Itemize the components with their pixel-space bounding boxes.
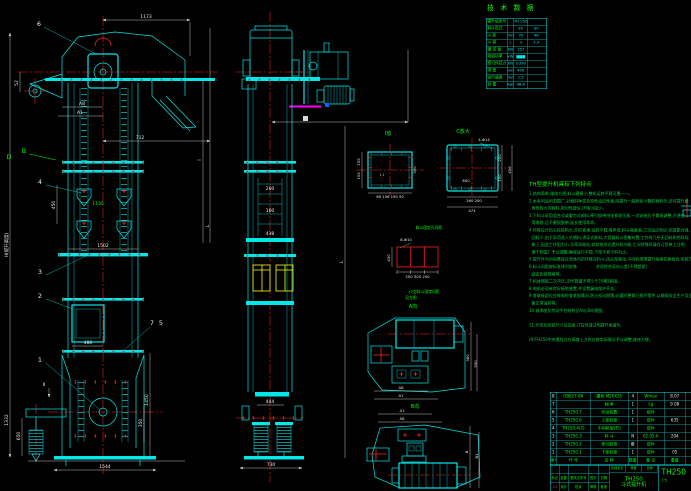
tech-row-value-1: 400 [514, 68, 528, 75]
tech-table-row: 斗 距 mm 35 48 [487, 33, 547, 40]
bom-code: TH250.3 [557, 433, 591, 441]
note-line: 便于制造厂予以调整,确保运行平稳,下部不易卡料为止。 [529, 249, 691, 256]
sign-label: 审核 [589, 483, 599, 491]
tech-row-value-2 [528, 19, 545, 26]
bom-row: 5 TH250.6 上部机架 1 部件 635 [551, 417, 691, 425]
dim-155a: 155 [356, 158, 361, 166]
note-line: 7.机体钢板二次冲压,正H(数量不得少于16套)紧固。 [529, 278, 691, 285]
stage-label: 阶段标记 [610, 466, 626, 473]
dim-390: 390 [412, 166, 417, 174]
bom-name: 下部机架 [591, 449, 629, 457]
dim-350: 350 [138, 419, 144, 428]
tech-row-value-2: 48 [528, 33, 545, 40]
bom-row: 4 TH250.4(3) 中间机架(节) 部件 [551, 425, 691, 433]
bom-header-extra [686, 457, 691, 465]
bom-qty: 1 [629, 417, 638, 425]
tech-row-value-2 [528, 82, 545, 89]
dim-650: 650 [16, 432, 22, 441]
tech-row-label: 运行速度 [487, 75, 508, 82]
dim-A8-viewB: A8 [399, 416, 405, 421]
drawing-number: TH250 [662, 466, 691, 479]
section-I: I放 I-I 98 156 195 92 155 155 390 [356, 130, 424, 199]
dim-H: H(提升高度) [3, 232, 10, 257]
bom-extra [686, 425, 691, 433]
tech-table-row: 带 宽 mm 400 [487, 68, 547, 75]
title-block: 标记 处数 更改文件号 签字 日期 1:5 设计 校对 审核 批准 阶段标记 质 [550, 465, 691, 491]
product-name: 斗式提升机 [621, 482, 646, 488]
drawing-scale-2: 1:5 [662, 479, 691, 483]
bom-code: TH250.6 [557, 417, 591, 425]
tech-row-label: 斗 距 [487, 33, 508, 40]
dim-L-side: L [339, 260, 345, 263]
bom-remark: 部件 [638, 425, 665, 433]
bom-row: 3 TH250.3 料 斗 N 02.05-A 204 [551, 433, 691, 441]
bom-extra [686, 433, 691, 441]
rev-label: 日期 [599, 474, 610, 482]
bom-remark: 部件 [638, 449, 665, 457]
bom-remark: 02.05-A [638, 433, 665, 441]
tech-table-row: 自 重 kg/m 48.8 [487, 82, 547, 89]
view-B: B向 A1 A8 B B1 [367, 403, 480, 488]
bom-name: 轴 承 [591, 401, 629, 409]
bom-row: 6 TH250.7 传动装置 1 组件 [551, 409, 691, 417]
bom-qty: 1 [629, 449, 638, 457]
bom-remark: Lg [638, 401, 665, 409]
sign-label: 设计 [560, 483, 569, 491]
tech-row-label: 料斗形式 [487, 26, 508, 33]
tech-row-value-2 [528, 68, 545, 75]
note-line: 9.各联接部位应每周检查紧固情况,防止松动脱落,必要时更换已损坏零件,以确保安全… [529, 293, 691, 300]
bom-code [557, 401, 591, 409]
detail-title: 料斗固定孔间距 [416, 225, 443, 230]
bom-row: 2 TH250.2 牵引胶带 套 部件 [551, 441, 691, 449]
bolt-note: 4-Φ14 [478, 137, 490, 142]
bom-header-code: 代 号 [557, 457, 591, 465]
bom-code: TH250.1 [557, 449, 591, 457]
note-line: 4.特殊设计的头轮结构大,外形紧凑,运转平稳,噪声低,料斗强度高,工况适应性好,… [529, 227, 691, 234]
note-line: 3.下料斗采用混合式或重力式卸料,牵引胶带由张紧轮压紧,一次安装后不需再调整,方… [529, 212, 691, 219]
dim-B1: B1 [474, 453, 479, 459]
bom-weight: 9.08 [665, 401, 686, 409]
tech-table-row: 输 送 量 kN 157 [487, 47, 547, 54]
bom-name: 传动装置 [591, 409, 629, 417]
note-line [529, 329, 691, 336]
rev-label: 处数 [560, 474, 569, 482]
hole-note: 8-Φ10 [400, 237, 412, 242]
bom-code: TH250.4(3) [557, 425, 591, 433]
bom-code: TH250.2 [557, 441, 591, 449]
bom-remark: 部件 [638, 417, 665, 425]
dim-1173: 1173 [140, 14, 152, 20]
drawing-number-block: TH250 1:5 [659, 466, 691, 491]
revision-block: 标记 处数 更改文件号 签字 日期 1:5 设计 校对 审核 批准 [551, 466, 610, 491]
bom-extra [686, 393, 691, 401]
bom-name: 中间机架(节) [591, 425, 629, 433]
bom-and-title-block: 8 GB827-86 螺栓 M20X35 4 Wmax 8.07 7 轴 承 1… [550, 392, 691, 491]
dim-l: l [197, 159, 203, 160]
tech-row-value-1: 3 [514, 40, 528, 47]
dim-1502: 1502 [97, 243, 109, 249]
bom-weight [665, 441, 686, 449]
callout-2: 2 [38, 292, 42, 300]
view-A: A向 A8 A1 380 550 [368, 303, 478, 399]
view-A-label: A向 [409, 303, 417, 310]
tech-table-row: 牵引件拉力 kN ≥330 [487, 61, 547, 68]
section-mark-II: Ⅱ [43, 382, 45, 388]
callout-6: 6 [37, 20, 41, 28]
dim-474: 474 [468, 208, 476, 213]
bom-remark: 部件 [638, 441, 665, 449]
bom-header: 序号 代 号 名 称 数量 备 注 重量 [550, 457, 691, 466]
dim-A1-viewB: A1 [399, 408, 405, 413]
sign-label: 校对 [569, 483, 589, 491]
bom-header-name: 名 称 [591, 457, 629, 465]
section-C-label: C放大 [456, 128, 470, 135]
dim-155b: 155 [356, 172, 361, 180]
tech-table-row: 电机功率 kW ▆▆▆ [487, 54, 547, 61]
bom-name: 上部机架 [591, 417, 629, 425]
tech-table-row: 斗 容 L 3 1.3 [487, 40, 547, 47]
callout-1: 1 [38, 356, 42, 364]
rev-label: 更改文件号 [569, 474, 589, 482]
bom-remark: 组件 [638, 409, 665, 417]
bom-extra [686, 449, 691, 457]
bom-weight: 635 [665, 417, 686, 425]
callout-7: 7 [150, 319, 154, 327]
dim-712: 712 [136, 135, 145, 141]
tech-table-row: 运行速度 m/s 1.5 [487, 75, 547, 82]
tech-row-value-1: 35 [514, 33, 528, 40]
bom-name: 螺栓 M20X35 [591, 393, 629, 401]
bom-weight [665, 425, 686, 433]
side-view-dimensions: L 444 730 [240, 50, 408, 468]
note-line: 11.外形及安装尺寸见总图,订货时请注明提升高度H。 [529, 322, 691, 329]
tech-row-value-1: 1.5 [514, 75, 528, 82]
front-view: 1173 712 L l A8 A1 52 H(提升高度) 1332 650 4… [3, 14, 218, 474]
note-line: 固定安装规格等。 [529, 271, 691, 278]
tech-row-value-2: 1.3 [528, 40, 545, 47]
bom-weight: 05 [665, 449, 686, 457]
tech-row-value-1: ▆▆▆ [514, 54, 528, 61]
tech-row-value-1: ≥330 [514, 61, 528, 68]
detail-note-1: Y2型料斗固定间距 [408, 289, 440, 294]
dim-150: 150 [497, 174, 502, 182]
bom-name: 牵引胶带 [591, 441, 629, 449]
spacing-dims: 200 300 200 [405, 274, 430, 279]
bom-code: GB827-86 [557, 393, 591, 401]
tech-table-body: 提升机型号 TH 250 料斗形式 Zh Sh 斗 距 mm 35 48 [486, 18, 547, 89]
note-line [529, 315, 691, 322]
tech-table-title: 技 术 数 据 [487, 3, 536, 13]
dim-260: 260 [266, 186, 275, 192]
dim-B: B [464, 450, 469, 453]
tech-table-row: 提升机型号 TH 250 [487, 19, 547, 26]
bom-header-weight: 重量 [665, 457, 686, 465]
section-C: C放大 4-Φ14 600 260 200 474 200 150 456 [440, 128, 512, 213]
rev-label: 签字 [589, 474, 599, 482]
tech-row-value-2 [528, 54, 545, 61]
dim-A8-viewA: A8 [398, 385, 404, 390]
note-line: 用维修,且不磨损胶带,延长使用寿命。 [529, 220, 691, 227]
tech-row-value-1: TH 250 [514, 19, 528, 26]
note-line: 2.本系列适用范围广,对物料种类及特性适应性强,除提升一般粉状小颗粒物料外,还可… [529, 198, 691, 205]
bom-extra [686, 441, 691, 449]
callout-5: 5 [159, 319, 163, 327]
dim-480: 480 [84, 340, 93, 346]
bom-row: 1 TH250.1 下部机架 1 部件 05 [551, 449, 691, 457]
section-I-label: I放 [385, 130, 391, 137]
section-I-inner-label: I-I [380, 172, 384, 177]
bom-qty [629, 425, 638, 433]
notes-lines: 1.结构简单,维修方便,料斗磨损小,整机运转平稳可靠一一。2.本系列适用范围广,… [529, 191, 691, 344]
bom-qty: N [629, 433, 638, 441]
tech-row-label: 电机功率 [487, 54, 508, 61]
view-B-label: B向 [411, 403, 419, 410]
note-line: 1.结构简单,维修方便,料斗磨损小,整机运转平稳可靠一一。 [529, 191, 691, 198]
dim-1332: 1332 [4, 414, 10, 426]
dim-160: 160 [266, 208, 275, 214]
dim-430: 430 [386, 254, 391, 262]
tech-row-value-2 [528, 47, 545, 54]
rev-label: 标记 [551, 474, 560, 482]
tech-row-label: 牵引件拉力 [487, 61, 508, 68]
dim-600: 600 [462, 178, 470, 183]
tech-row-value-1: Zh [514, 26, 528, 33]
bom-extra [686, 409, 691, 417]
dim-A1: A1 [77, 110, 83, 116]
dim-1130: 1130 [92, 201, 104, 207]
dim-380: 380 [465, 354, 470, 362]
note-line: 8.电机必须有良好接地装置,并设置漏电保护开关。 [529, 285, 691, 292]
note-line: 10.轴承座及传动平台结构见A向,B向视图。 [529, 307, 691, 314]
bom-code: TH250.7 [557, 409, 591, 417]
dim-550: 550 [473, 360, 478, 368]
tech-row-label: 自 重 [487, 82, 508, 89]
note-line: 琢性较大的物料,密封性能好,环境污染少。 [529, 205, 691, 212]
dim-1450: 1450 [144, 394, 150, 406]
tech-table-row: 料斗形式 Zh Sh [487, 26, 547, 33]
view-label-D: D [6, 153, 11, 161]
bom-weight: 204 [665, 433, 686, 441]
note-line: (9)TH250中央悬挂点在高度上方时应按实际情况予以调整,维修方便。 [529, 336, 691, 343]
detail-note-2: 见左图 [405, 295, 417, 300]
bom-row: 8 GB827-86 螺栓 M20X35 4 Wmax 8.07 [551, 393, 691, 401]
bom-row: 7 轴 承 1 Lg 9.08 [551, 401, 691, 409]
blue-marker [325, 103, 329, 107]
bom-qty: 1 [629, 401, 638, 409]
bom-weight: 8.07 [665, 393, 686, 401]
tech-row-label: 提升机型号 [487, 19, 508, 26]
dim-A8: A8 [79, 101, 85, 107]
note-line: 6.料斗间距按标准排列安装 并须符合双向公差(不得超差) [529, 263, 691, 270]
side-bolt-marks [242, 80, 318, 418]
bom-header-remark: 备 注 [638, 457, 665, 465]
dim-1544: 1544 [99, 464, 111, 470]
white-marker [303, 116, 308, 121]
callout-4: 4 [38, 178, 42, 186]
bom-extra [686, 417, 691, 425]
bom-table: 8 GB827-86 螺栓 M20X35 4 Wmax 8.07 7 轴 承 1… [550, 392, 691, 457]
tech-row-value-1: 157 [514, 47, 528, 54]
tech-row-label: 带 宽 [487, 68, 508, 75]
bom-name: 料 斗 [591, 433, 629, 441]
dim-52: 52 [14, 80, 20, 86]
tech-row-value-2: Sh [528, 26, 545, 33]
tech-data-table: 提升机型号 TH 250 料斗形式 Zh Sh 斗 距 mm 35 48 [486, 18, 548, 89]
callout-3: 3 [38, 268, 42, 276]
bom-header-qty: 数量 [629, 457, 638, 465]
notes-title: TH型提升机具有下列特点 [529, 180, 691, 188]
stage-label: 质量 [626, 466, 642, 473]
dim-260-200: 260 200 [466, 198, 482, 203]
dim-456: 456 [507, 166, 512, 174]
product-block: 阶段标记 质量 比例 TH250 斗式提升机 [610, 466, 659, 491]
side-view: 260 160 438 L 444 [236, 12, 408, 482]
dim-444: 444 [266, 399, 275, 405]
bom-extra [686, 401, 691, 409]
tech-row-label: 输 送 量 [487, 47, 508, 54]
drawing-scale: 1:5 [551, 483, 560, 491]
tech-row-label: 斗 容 [487, 40, 508, 47]
dim-730: 730 [267, 462, 276, 468]
note-line: 备正常运转等。 [529, 300, 691, 307]
note-line: 5.提升件为自由悬挂在壳体内的环链及料斗,由头部驱动,中间机架随提升高度任意组合… [529, 256, 691, 263]
stage-label: 比例 [642, 466, 658, 473]
bucket-spacing-detail: 料斗固定孔间距 8-Φ10 200 300 200 430 Y2型料斗固定间距 … [386, 225, 442, 300]
bom-weight [665, 409, 686, 417]
tech-row-value-2 [528, 61, 545, 68]
note-line: 回料少,由于采用流入式喂料,诱导式卸料,大容量料斗密集布置,工作时几乎无回料和挖… [529, 234, 691, 241]
tech-row-value-1: 48.8 [514, 82, 528, 89]
bom-qty: 4 [629, 393, 638, 401]
dim-200: 200 [497, 154, 502, 162]
dim-450: 450 [51, 201, 57, 210]
section-I-bottom-dims: 98 156 195 92 [376, 194, 404, 199]
dim-438: 438 [266, 231, 275, 237]
notes-block: TH型提升机具有下列特点 1.结构简单,维修方便,料斗磨损小,整机运转平稳可靠一… [529, 180, 691, 380]
tech-row-value-2 [528, 75, 545, 82]
bom-qty: 1 [629, 409, 638, 417]
cad-canvas: 1173 712 L l A8 A1 52 H(提升高度) 1332 650 4… [0, 0, 691, 491]
note-line: 象上,因此工作阻力小,功率消耗低,较其他形式提升机节能,工况特殊时请在订货单上注… [529, 242, 691, 249]
dim-A1-viewA: A1 [398, 393, 404, 398]
bom-remark: Wmax [638, 393, 665, 401]
view-label-B: B [22, 147, 26, 155]
bom-qty: 套 [629, 441, 638, 449]
sign-label: 批准 [599, 483, 610, 491]
